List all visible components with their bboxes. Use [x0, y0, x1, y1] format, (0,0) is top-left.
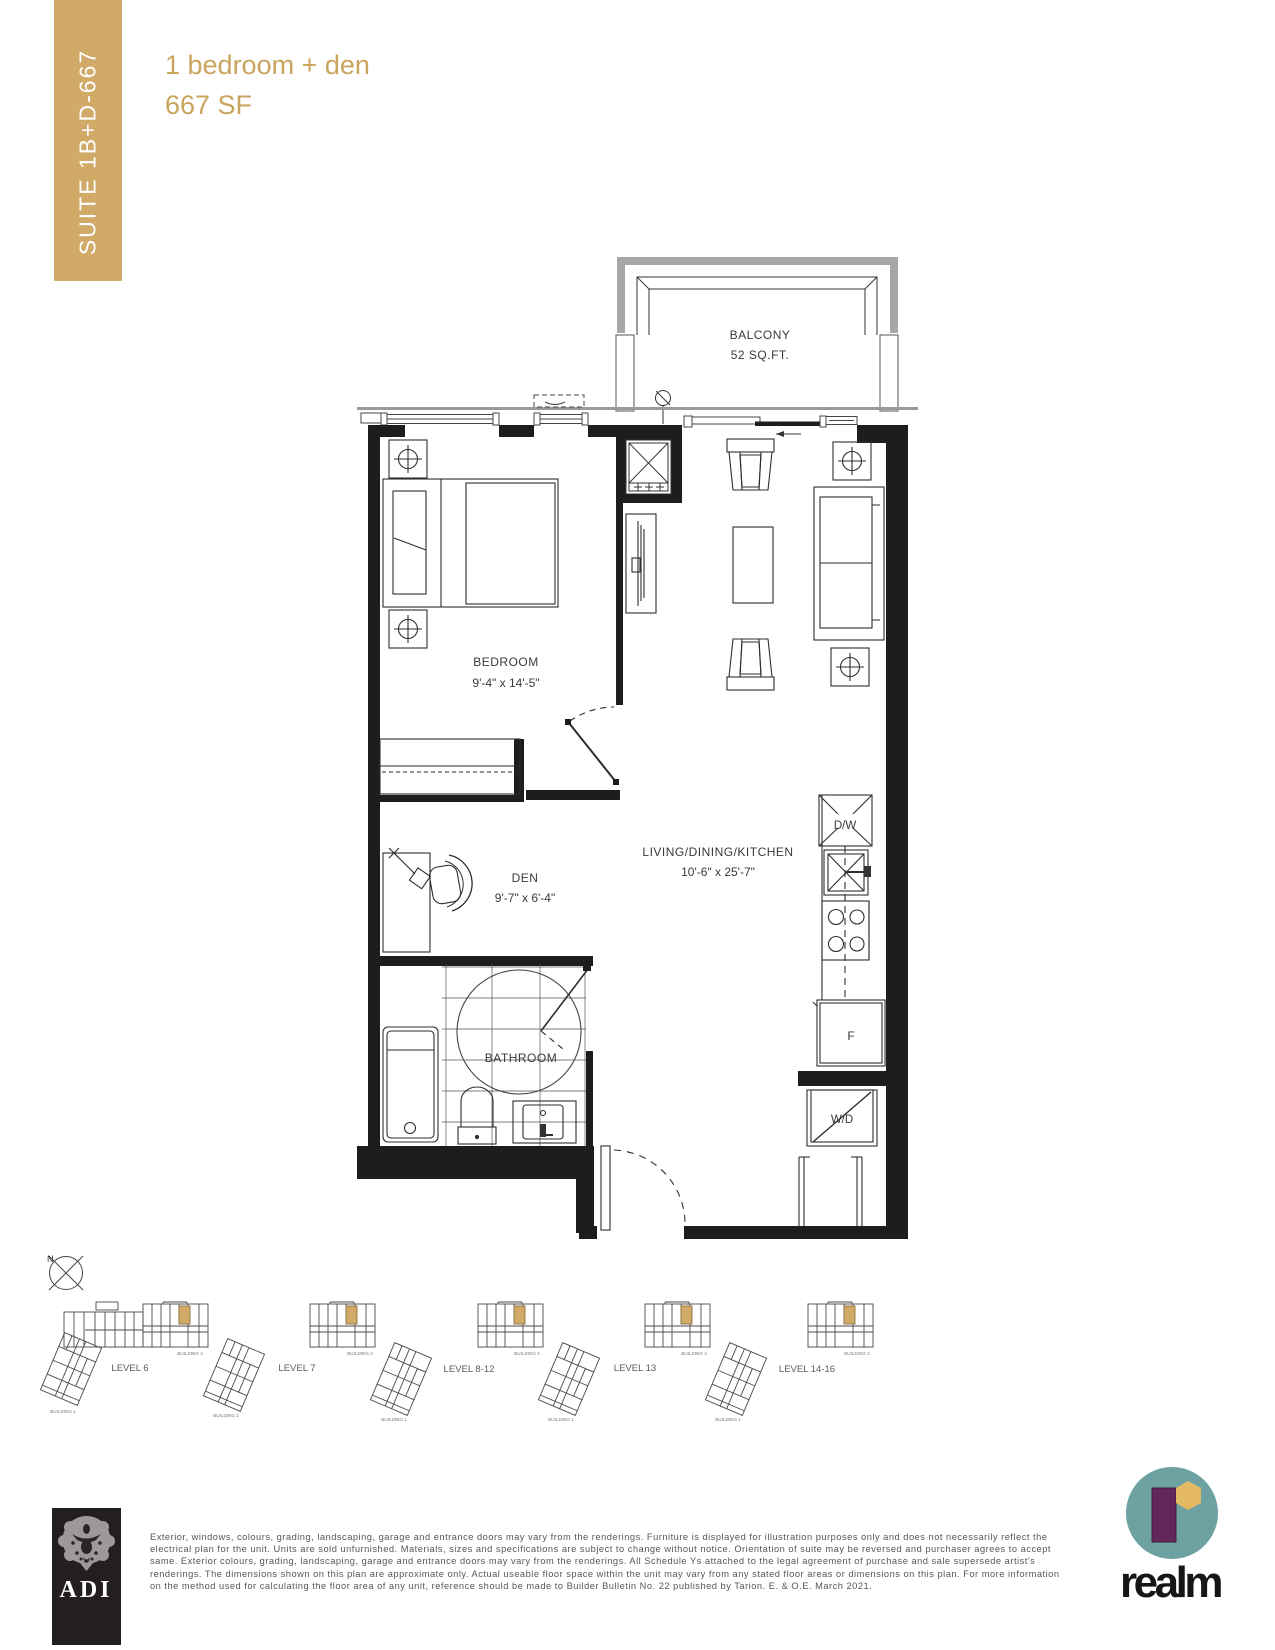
svg-text:F: F — [847, 1029, 854, 1043]
svg-text:W/D: W/D — [831, 1114, 853, 1126]
svg-text:10'-6" x 25'-7": 10'-6" x 25'-7" — [681, 865, 755, 879]
svg-text:BATHROOM: BATHROOM — [485, 1051, 557, 1065]
svg-text:BUILDING 1: BUILDING 1 — [381, 1417, 407, 1422]
svg-text:BUILDING 2: BUILDING 2 — [347, 1351, 373, 1356]
svg-text:BUILDING 1: BUILDING 1 — [548, 1417, 574, 1422]
svg-text:BUILDING 2: BUILDING 2 — [681, 1351, 707, 1356]
svg-text:LEVEL 7: LEVEL 7 — [278, 1363, 315, 1374]
svg-text:BUILDING 1: BUILDING 1 — [213, 1413, 239, 1418]
svg-text:LIVING/DINING/KITCHEN: LIVING/DINING/KITCHEN — [642, 845, 793, 859]
svg-text:BALCONY: BALCONY — [730, 328, 791, 342]
svg-text:BUILDING 1: BUILDING 1 — [50, 1409, 76, 1414]
svg-text:LEVEL 8-12: LEVEL 8-12 — [444, 1364, 495, 1375]
svg-text:52 SQ.FT.: 52 SQ.FT. — [731, 348, 790, 362]
svg-text:LEVEL 14-16: LEVEL 14-16 — [779, 1364, 835, 1375]
svg-text:9'-7" x 6'-4": 9'-7" x 6'-4" — [495, 891, 555, 905]
svg-text:LEVEL 13: LEVEL 13 — [614, 1363, 656, 1374]
svg-text:D/W: D/W — [834, 820, 857, 832]
svg-text:N: N — [47, 1254, 54, 1264]
svg-text:9'-4" x 14'-5": 9'-4" x 14'-5" — [472, 676, 539, 690]
svg-text:LEVEL 6: LEVEL 6 — [111, 1363, 148, 1374]
svg-text:BUILDING 2: BUILDING 2 — [177, 1351, 203, 1356]
svg-text:BEDROOM: BEDROOM — [473, 655, 539, 669]
svg-text:ADI: ADI — [59, 1577, 112, 1603]
svg-text:BUILDING 2: BUILDING 2 — [844, 1351, 870, 1356]
svg-text:BUILDING 1: BUILDING 1 — [715, 1417, 741, 1422]
svg-text:BUILDING 2: BUILDING 2 — [514, 1351, 540, 1356]
svg-text:DEN: DEN — [512, 871, 539, 885]
